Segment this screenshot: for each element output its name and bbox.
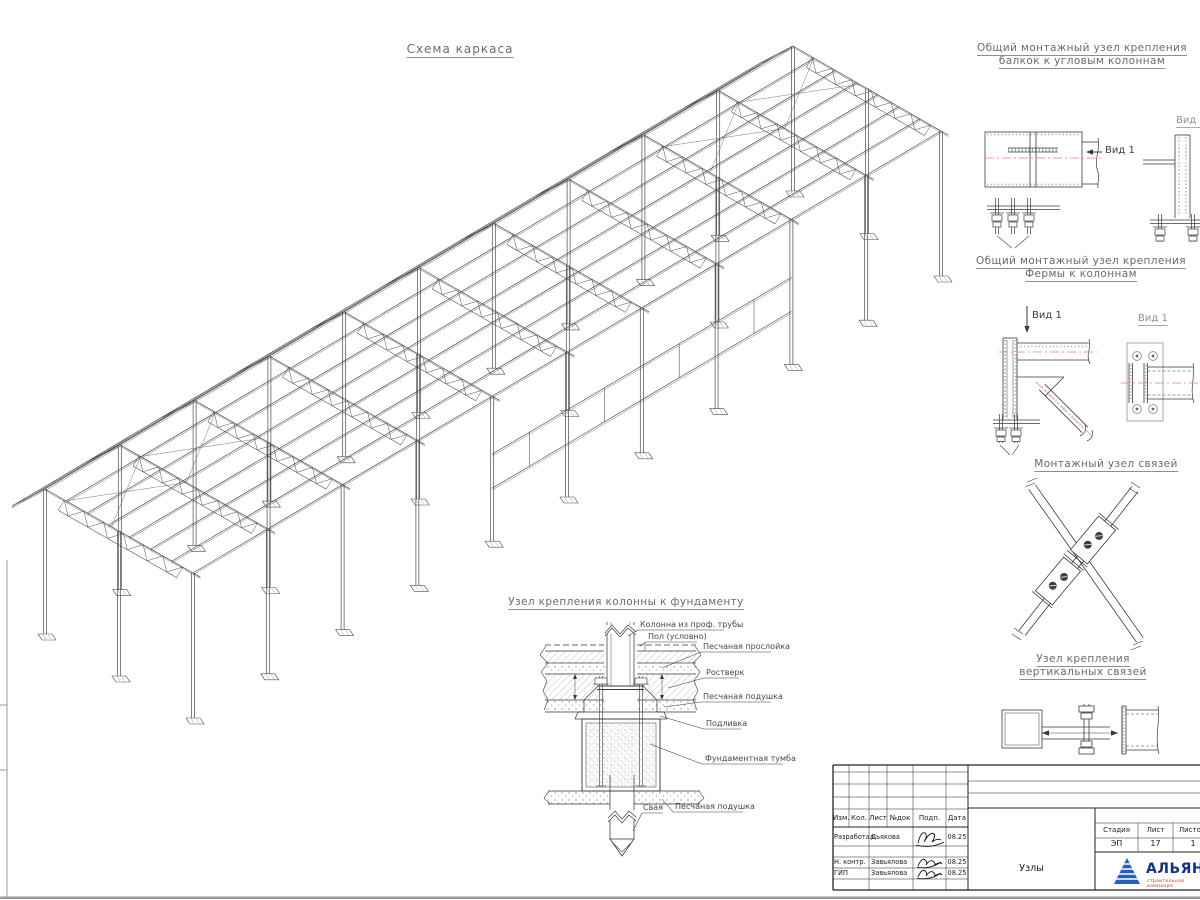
- stamp-name-2: Завьялова: [871, 869, 907, 877]
- callout-sand-layer: Песчаная прослойка: [703, 642, 790, 651]
- view-label-truss-side: Вид 1: [1138, 313, 1168, 326]
- view-label-truss: Вид 1: [1032, 310, 1062, 321]
- callout-grout: Подливка: [706, 719, 747, 728]
- company-subtitle: строительная компания: [1147, 879, 1200, 889]
- detail-truss-to-column: [993, 306, 1200, 455]
- drawing-sheet: { "sheet": { "main_title": "Схема каркас…: [0, 0, 1200, 900]
- view-label-corner: Вид 1: [1105, 145, 1135, 156]
- stamp-stage-label: Стадия: [1095, 826, 1138, 834]
- stamp-col-ndok: №док: [887, 814, 913, 822]
- stamp-col-izm: Изм.: [833, 814, 849, 822]
- stamp-date-0: 08.25: [946, 833, 968, 841]
- main-title: Схема каркаса: [407, 42, 514, 58]
- stamp-sheets-value: 1: [1183, 839, 1200, 848]
- detail-vertical-brace: [1002, 704, 1159, 754]
- stamp-role-0: Разработал: [834, 833, 874, 841]
- callout-block: Фундаментная тумба: [705, 754, 796, 763]
- detail-corner-title: Общий монтажный узел крепления балкок к …: [977, 42, 1187, 68]
- stamp-role-2: ГИП: [834, 869, 848, 877]
- stamp-name-0: Дьякова: [871, 833, 900, 841]
- stamp-date-2: 08.25: [946, 869, 968, 877]
- stamp-col-kol: Кол.: [849, 814, 869, 822]
- detail-corner-side-view: [1143, 135, 1200, 242]
- bolt-group: [990, 198, 1036, 234]
- signature: [916, 833, 944, 879]
- detail-brace-node: [1012, 478, 1143, 650]
- detail-vbrace-title: Узел крепления вертикальных связей: [1019, 653, 1146, 679]
- view-arrow: [1086, 149, 1102, 155]
- callout-sand-cushion2: Песчаная подушка: [675, 802, 755, 811]
- stamp-sheet-label: Лист: [1138, 826, 1173, 834]
- company-name: АЛЬЯНС: [1146, 861, 1200, 877]
- callout-pile: Свая: [643, 803, 663, 812]
- callout-grillage: Ростверк: [706, 668, 744, 677]
- stamp-date-1: 08.25: [946, 858, 968, 866]
- stamp-name-1: Завьялова: [871, 858, 907, 866]
- stamp-sheet-value: 17: [1138, 839, 1173, 848]
- stamp-col-data: Дата: [946, 814, 968, 822]
- sheet-line-art: [0, 0, 1200, 900]
- frame-isometric-scheme: [12, 46, 952, 724]
- stamp-sheets-label: Листов: [1173, 826, 1200, 834]
- foundation-title: Узел крепления колонны к фундаменту: [508, 596, 744, 608]
- callout-sand-cushion: Песчаная подушка: [703, 692, 783, 701]
- view-label-corner-side: Вид 1: [1176, 115, 1200, 128]
- foundation-detail-art: [540, 622, 783, 856]
- callout-column: Колонна из проф. трубы: [640, 620, 743, 629]
- detail-corner-beam-column: [985, 132, 1102, 248]
- stamp-col-list: Лист: [869, 814, 887, 822]
- detail-truss-title: Общий монтажный узел крепления Фермы к к…: [976, 255, 1186, 281]
- stamp-col-podp: Подп.: [913, 814, 946, 822]
- stamp-doc-title: Узлы: [968, 863, 1095, 874]
- stamp-stage-value: ЭП: [1095, 839, 1138, 848]
- callout-floor: Пол (условно): [648, 632, 707, 641]
- brace-plate: [1032, 554, 1083, 608]
- stamp-role-1: Н. контр.: [834, 858, 866, 866]
- detail-brace-title: Монтажный узел связей: [1034, 458, 1178, 470]
- company-logo-icon: [1110, 856, 1144, 886]
